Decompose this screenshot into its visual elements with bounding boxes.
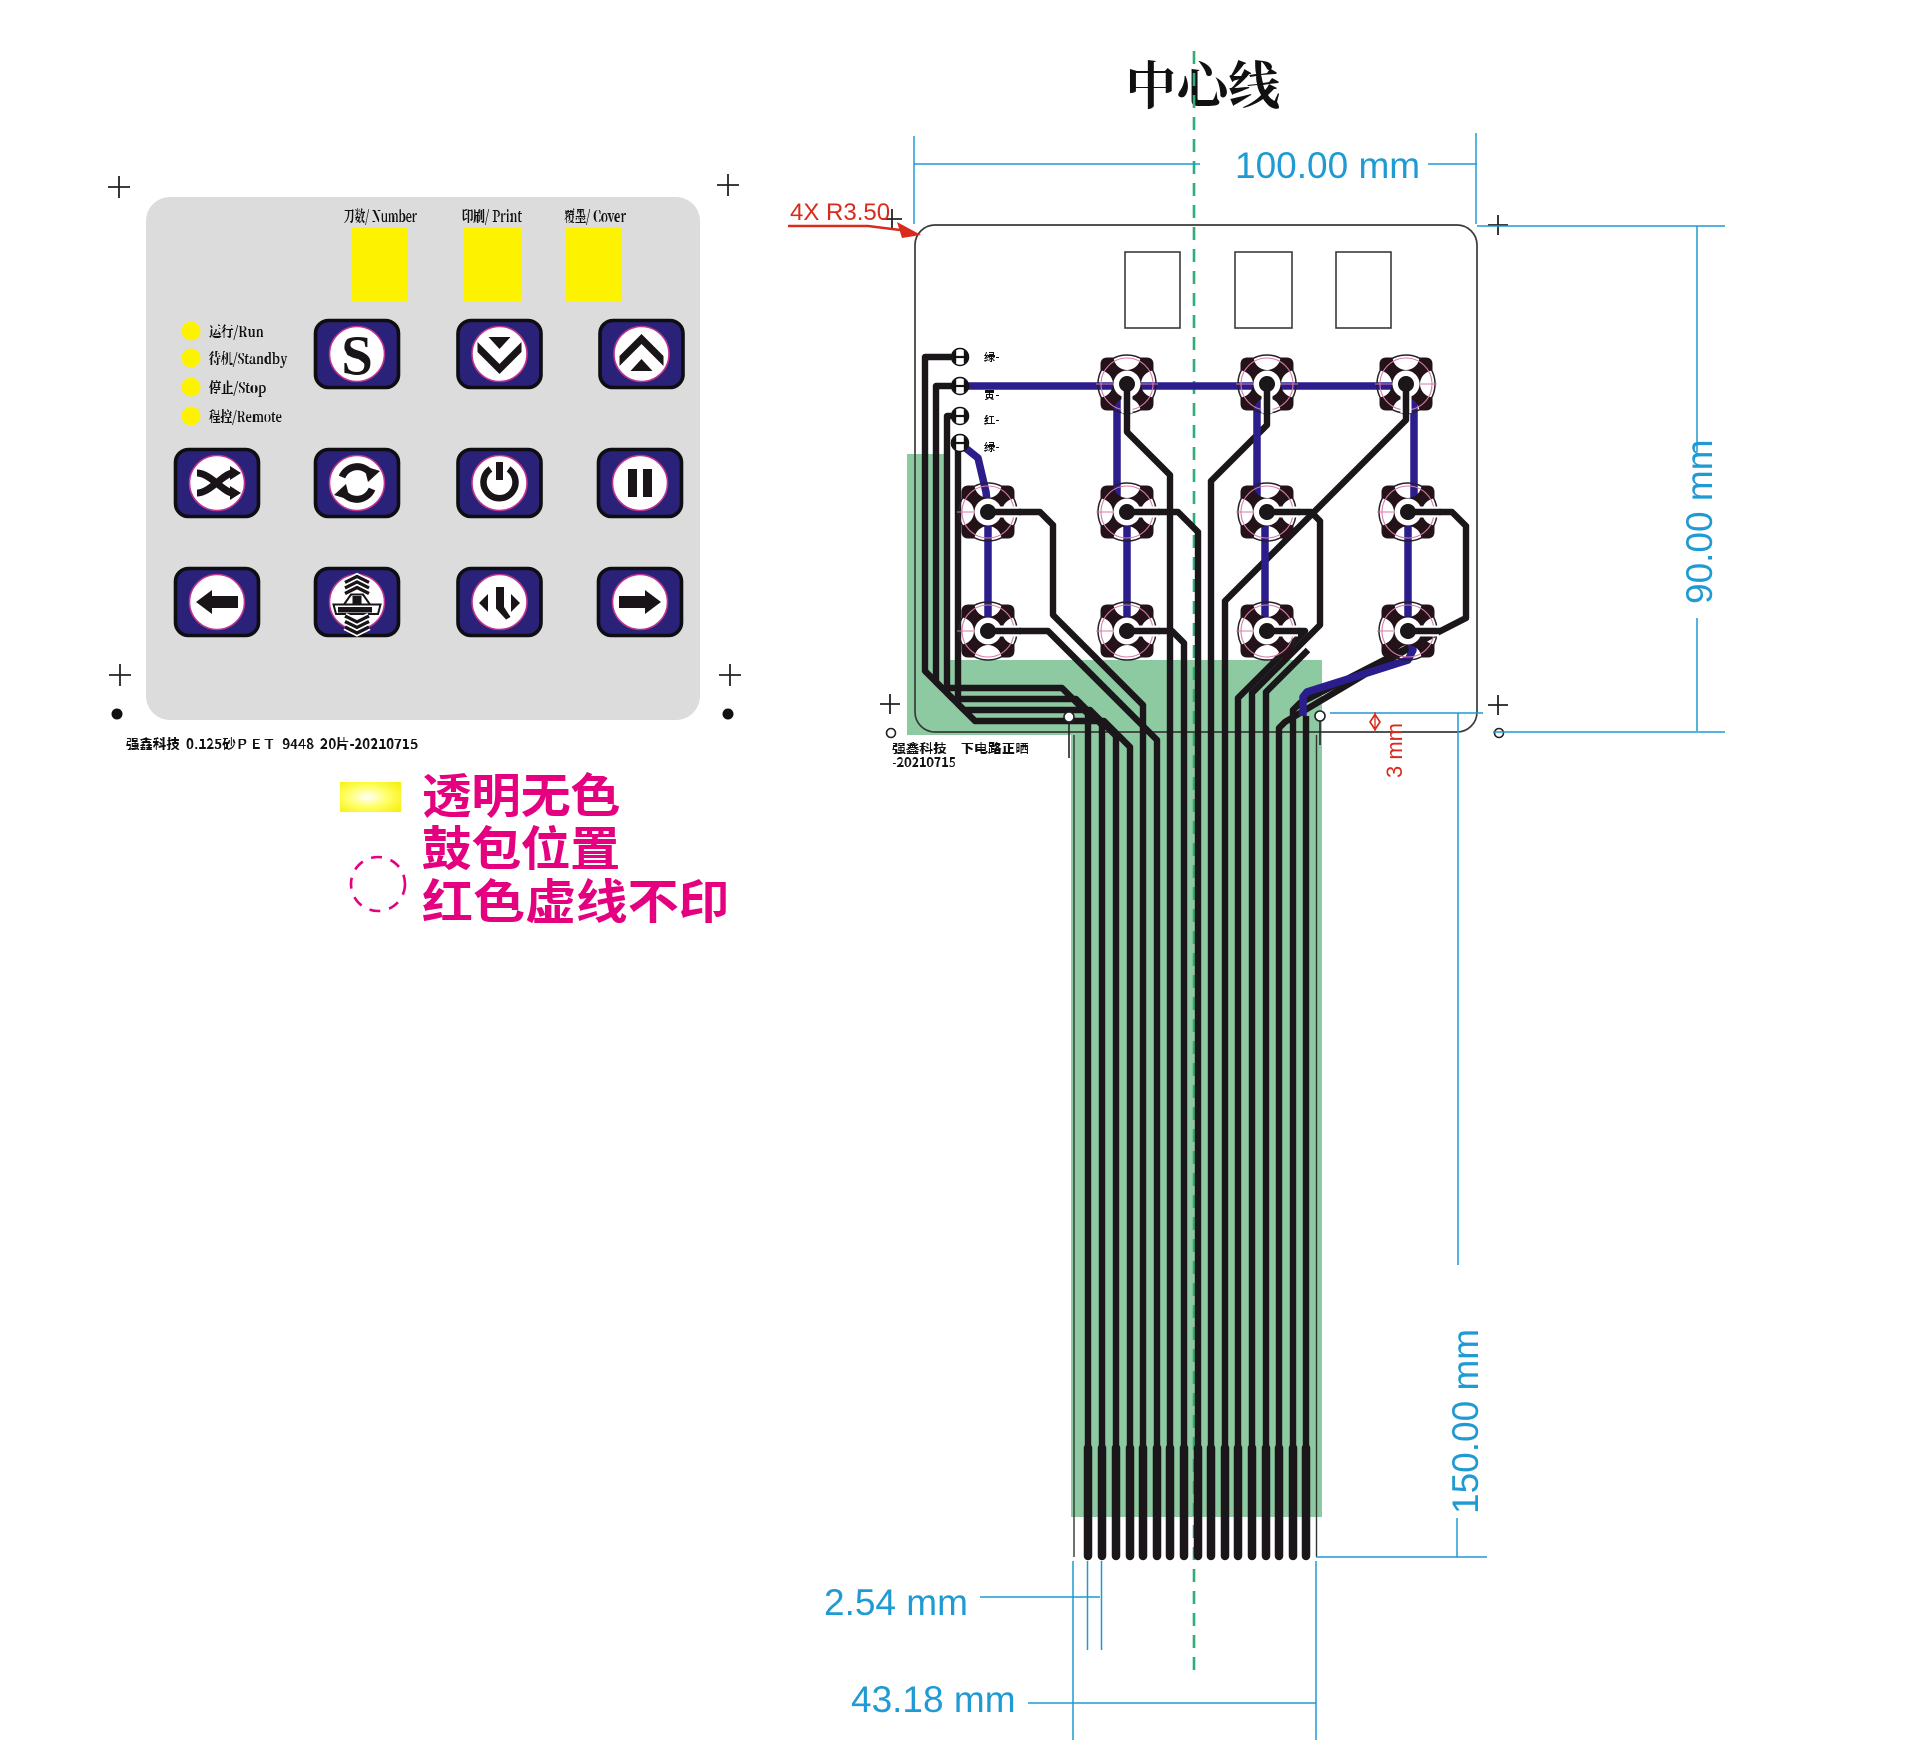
svg-text:150.00 mm: 150.00 mm: [1445, 1329, 1486, 1514]
svg-text:43.18 mm: 43.18 mm: [851, 1679, 1016, 1720]
svg-text:2.54 mm: 2.54 mm: [824, 1582, 968, 1623]
svg-text:4X R3.50: 4X R3.50: [790, 199, 890, 226]
svg-text:100.00 mm: 100.00 mm: [1235, 145, 1420, 186]
svg-text:3 mm: 3 mm: [1382, 723, 1407, 778]
svg-text:90.00 mm: 90.00 mm: [1679, 439, 1720, 604]
